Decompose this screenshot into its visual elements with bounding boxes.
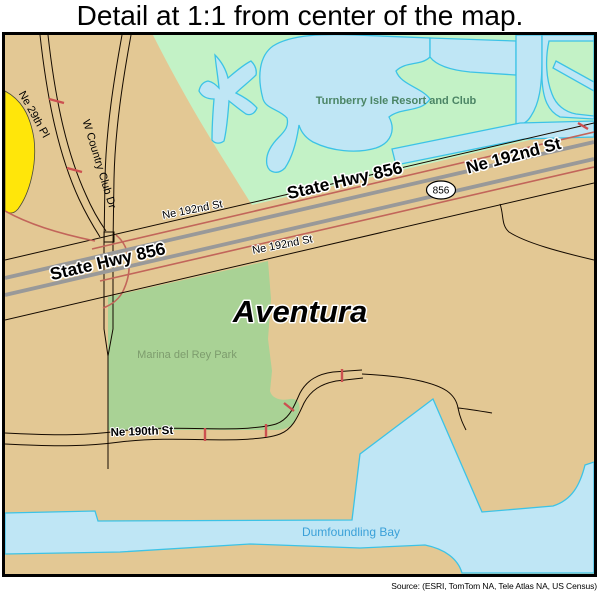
label-marina-del-rey-park: Marina del Rey Park [137,349,237,361]
label-turnberry-resort: Turnberry Isle Resort and Club [316,95,477,107]
map-frame: 856 Turnberry Isle Resort and Club Ne 19… [2,32,597,577]
shield-number: 856 [433,186,450,197]
page-title: Detail at 1:1 from center of the map. [0,0,600,31]
highway-856-shield: 856 [427,181,456,199]
label-ne-190th-st: Ne 190th St [110,425,173,439]
label-city-aventura: Aventura [232,294,367,329]
source-attribution: Source: (ESRI, TomTom NA, Tele Atlas NA,… [391,581,597,591]
map-detail-page: Detail at 1:1 from center of the map. [0,0,600,600]
map-canvas: 856 Turnberry Isle Resort and Club Ne 19… [5,35,594,574]
label-dumfoundling-bay: Dumfoundling Bay [302,525,400,539]
